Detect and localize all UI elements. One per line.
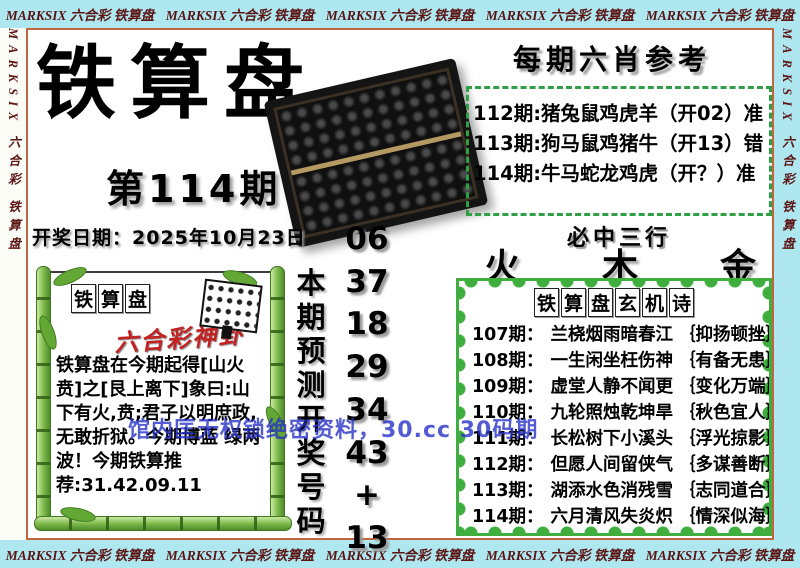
poem-text: 六月清风失炎炽: [551, 507, 674, 527]
poem-period: 107期：: [472, 325, 544, 345]
oracle-title: 铁算盘: [70, 284, 151, 313]
poem-row: 109期：虚堂人静不闻更｛变化万端｝: [472, 374, 769, 400]
tipsheet-page: MARKSIX 六合彩 铁算盘MARKSIX 六合彩 铁算盘MARKSIX 六合…: [0, 0, 800, 568]
poem-row: 113期：湖添水色消残雪｛志同道合｝: [472, 478, 769, 504]
six-xiao-row: 113期:狗马鼠鸡猪牛（开13）错: [473, 129, 767, 159]
bamboo-right-stalk: [270, 266, 285, 528]
six-xiao-title: 每期六肖参考: [456, 38, 768, 78]
poem-period: 109期：: [472, 377, 544, 397]
prediction-number: 06: [345, 224, 388, 255]
prediction-numbers: 063718293443+13: [334, 224, 400, 554]
poem-text: 一生闲坐枉伤神: [551, 351, 674, 371]
poem-text: 九轮照烛乾坤旱: [551, 403, 674, 423]
border-top-pattern: MARKSIX 六合彩 铁算盘MARKSIX 六合彩 铁算盘MARKSIX 六合…: [0, 0, 800, 28]
poem-period: 113期：: [472, 481, 544, 501]
border-right-text: MARKSIX 六合彩 铁算盘MARKSIX 六合彩 铁算盘MARKSIX 六合…: [774, 28, 800, 540]
mystery-poem-title: 铁算盘玄机诗: [459, 288, 769, 317]
mystery-poem-box: 铁算盘玄机诗 107期：兰桡烟雨暗春江｛抑扬顿挫｝108期：一生闲坐枉伤神｛有备…: [456, 278, 772, 536]
poem-row: 108期：一生闲坐枉伤神｛有备无患｝: [472, 348, 769, 374]
poem-note: ｛秋色宜人｝: [678, 403, 772, 423]
poem-text: 湖添水色消残雪: [551, 481, 674, 501]
poem-period: 108期：: [472, 351, 544, 371]
prediction-number: 13: [345, 523, 388, 554]
poem-row: 114期：六月清风失炎炽｛情深似海｝: [472, 504, 769, 530]
issue-number: 第114期: [106, 158, 281, 213]
border-left-text: MARKSIX 六合彩 铁算盘MARKSIX 六合彩 铁算盘MARKSIX 六合…: [0, 28, 26, 540]
border-left-pattern: MARKSIX 六合彩 铁算盘MARKSIX 六合彩 铁算盘MARKSIX 六合…: [0, 28, 26, 540]
prediction-number: 29: [345, 352, 388, 383]
poem-text: 但愿人间留侠气: [551, 455, 674, 475]
abacus-frame: [273, 67, 479, 238]
poem-text: 长松树下小溪头: [551, 429, 674, 449]
border-right-pattern: MARKSIX 六合彩 铁算盘MARKSIX 六合彩 铁算盘MARKSIX 六合…: [774, 28, 800, 540]
main-area: 铁算盘 第114期 开奖日期：2025年10月23日 每期六肖参考 112期:猪…: [26, 28, 774, 540]
poem-period: 114期：: [472, 507, 544, 527]
poem-note: ｛有备无患｝: [678, 351, 772, 371]
prediction-number: +: [354, 480, 380, 511]
bamboo-left-stalk: [36, 266, 51, 528]
mini-abacus-art: [199, 279, 262, 334]
six-xiao-row: 112期:猪兔鼠鸡虎羊（开02）准: [473, 99, 767, 129]
poem-note: ｛多谋善断｝: [678, 455, 772, 475]
prediction-label: 本期预测开奖号码: [292, 266, 330, 538]
border-bottom-pattern: MARKSIX 六合彩 铁算盘MARKSIX 六合彩 铁算盘MARKSIX 六合…: [0, 540, 800, 568]
poem-note: ｛浮光掠影｝: [678, 429, 772, 449]
oracle-box: 铁算盘 六合彩神卦 铁算盘在今期起得[山火贲]之[艮上离下]象曰:山下有火,贲;…: [30, 266, 296, 540]
draw-date: 开奖日期：2025年10月23日: [32, 223, 306, 250]
poem-row: 107期：兰桡烟雨暗春江｛抑扬顿挫｝: [472, 322, 769, 348]
watermark-text: 馆内匡无权锁绝密资料，30.cc 30码期: [128, 412, 538, 444]
poem-note: ｛情深似海｝: [678, 507, 772, 527]
six-xiao-row: 114期:牛马蛇龙鸡虎（开？）准: [473, 159, 767, 189]
poem-note: ｛抑扬顿挫｝: [678, 325, 772, 345]
poem-row: 112期：但愿人间留侠气｛多谋善断｝: [472, 452, 769, 478]
prediction-number: 18: [345, 309, 388, 340]
six-xiao-box: 112期:猪兔鼠鸡虎羊（开02）准113期:狗马鼠鸡猪牛（开13）错114期:牛…: [466, 86, 772, 216]
poem-period: 112期：: [472, 455, 544, 475]
poem-text: 兰桡烟雨暗春江: [551, 325, 674, 345]
poem-note: ｛志同道合｝: [678, 481, 772, 501]
poem-text: 虚堂人静不闻更: [551, 377, 674, 397]
prediction-number: 37: [345, 267, 388, 298]
poem-note: ｛变化万端｝: [678, 377, 772, 397]
